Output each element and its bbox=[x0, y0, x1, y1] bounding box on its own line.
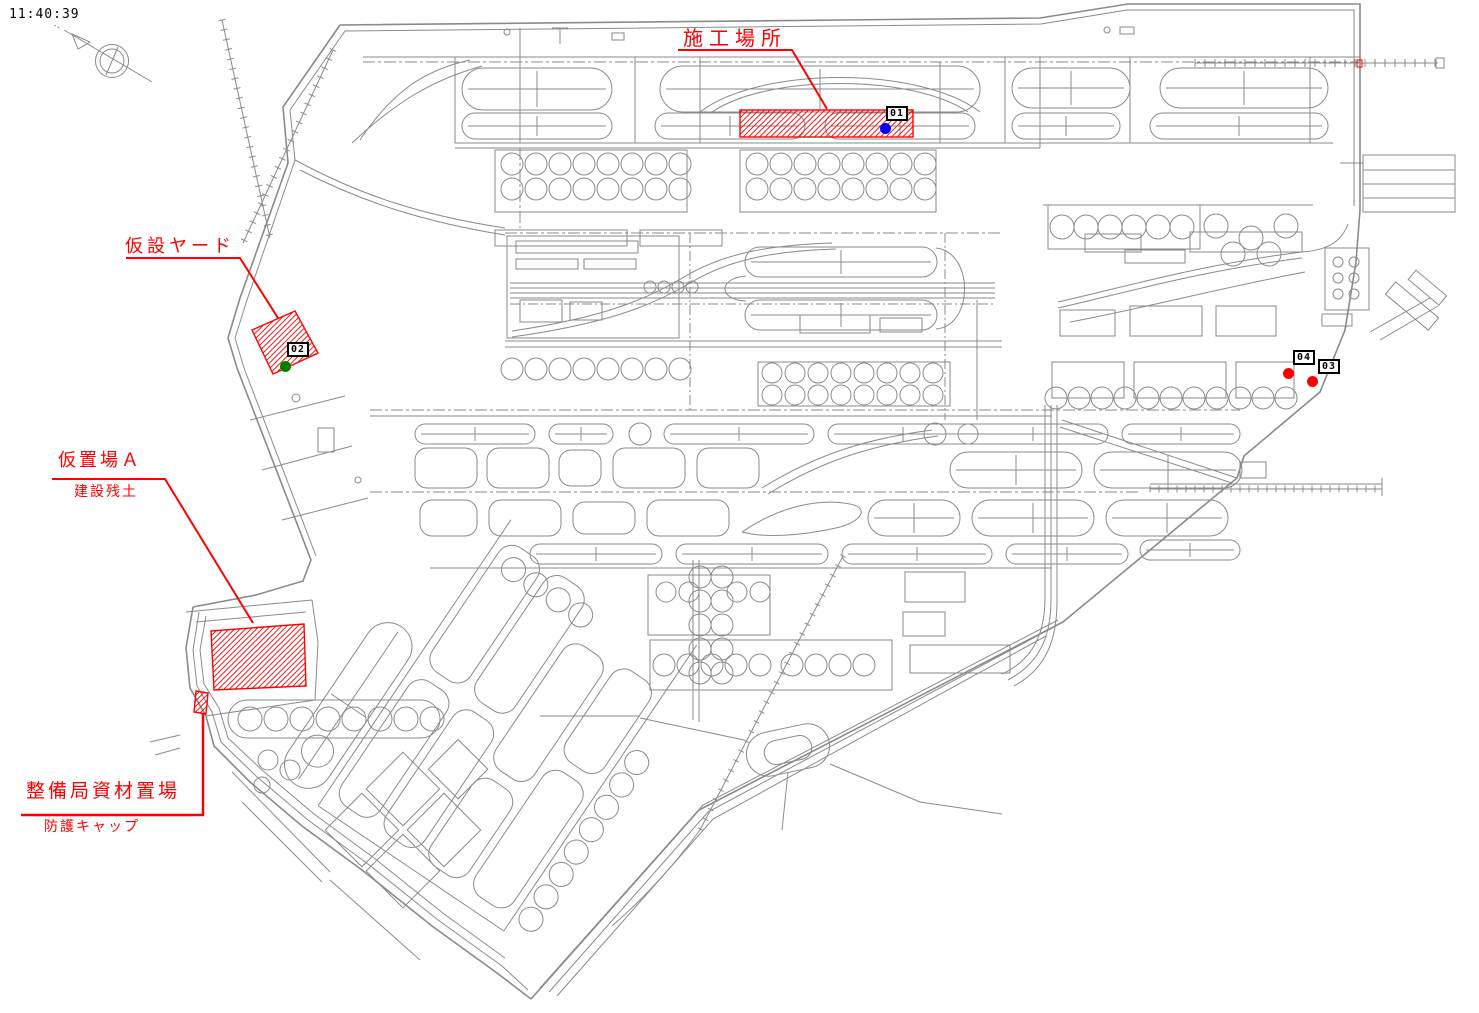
marker-dot-02 bbox=[280, 361, 291, 372]
marker-dot-01 bbox=[880, 123, 891, 134]
site-plan-drawing bbox=[0, 0, 1479, 1013]
marker-dot-04 bbox=[1283, 368, 1294, 379]
marker-tag-02[interactable]: 02 bbox=[287, 342, 309, 357]
label-maintenance-storage-note: 防護キャップ bbox=[44, 819, 140, 834]
label-maintenance-storage: 整備局資材置場 bbox=[26, 782, 180, 802]
maintenance-storage-hatch bbox=[194, 691, 208, 714]
north-arrow-icon bbox=[54, 25, 152, 82]
label-temporary-storage-a-note: 建設残土 bbox=[74, 484, 138, 499]
timestamp: 11:40:39 bbox=[9, 7, 80, 22]
marker-tag-04[interactable]: 04 bbox=[1293, 350, 1315, 365]
marker-dot-03 bbox=[1307, 376, 1318, 387]
label-temporary-yard: 仮設ヤード bbox=[125, 237, 235, 256]
label-temporary-storage-a: 仮置場Ａ bbox=[58, 451, 142, 470]
site-plan: 11:40:39 施工場所 仮設ヤード 仮置場Ａ 建設残土 整備局資材置場 防護… bbox=[0, 0, 1479, 1013]
temporary-yard-leader bbox=[126, 258, 278, 318]
temporary-storage-a-hatch bbox=[211, 624, 306, 690]
label-construction-site: 施工場所 bbox=[683, 29, 787, 50]
cad-linework bbox=[150, 4, 1455, 999]
marker-tag-03[interactable]: 03 bbox=[1318, 359, 1340, 374]
marker-tag-01[interactable]: 01 bbox=[886, 106, 908, 121]
annotation-overlay bbox=[21, 50, 1362, 815]
